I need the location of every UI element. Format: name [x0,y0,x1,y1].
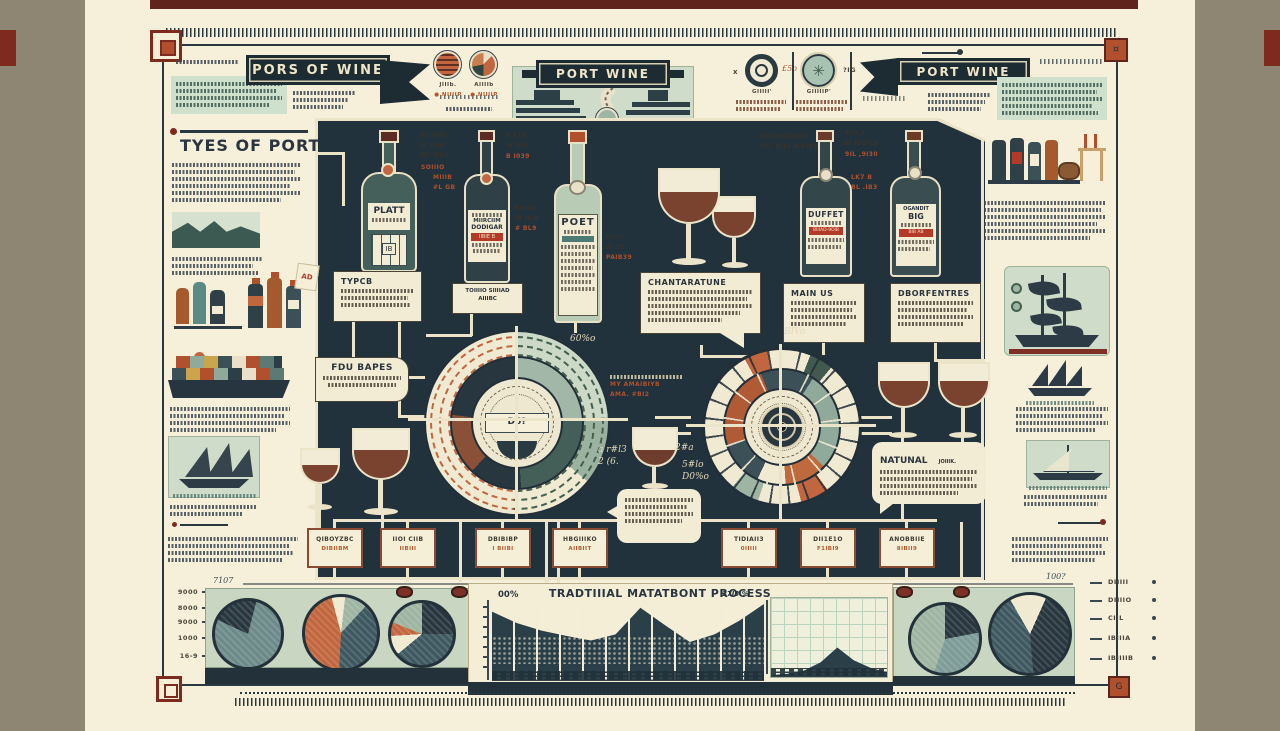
legend-tick [1090,618,1102,620]
bottle-band: BIB AB [899,229,933,237]
stat-pie-icon [470,51,497,78]
label-box-2: IIOI CIIBIIBIII [380,528,436,568]
garbled-text-block [293,88,355,112]
garbled-text-block [168,534,298,565]
legend-tick [1090,582,1102,584]
terrace-bar [632,102,690,107]
cargo-ship-illustration [168,348,290,400]
wine-glass-stem [961,408,965,434]
building-icon [648,90,668,101]
compass-icon [745,54,778,87]
axis-tick [483,646,489,648]
script-axis-label: 7107 [213,576,233,586]
annotation: BVIIA W NLB [515,204,539,224]
script-note: 5#lo D0%o [682,460,709,483]
garbled-text-block [796,97,848,114]
wine-glass-foot [949,432,977,438]
natural-title: NATUNAL [880,456,927,466]
connector [747,568,750,580]
axis-label: 8000 [168,604,198,612]
wine-bottle-3: POET [552,130,604,325]
bullet-dot-icon [172,522,177,527]
divider [180,130,308,133]
corner-ornament-bl [156,676,182,702]
legend-tick [1090,638,1102,640]
garbled-text-block [170,502,256,519]
wine-glass-icon [712,196,756,238]
legend-dot-icon [1152,598,1156,602]
connector [901,504,904,521]
wine-glass-foot [308,504,332,510]
wine-glass-icon [352,428,410,480]
shelf-bottle-icon [248,284,263,328]
wine-glass-icon [632,427,678,467]
connector-knob-icon [451,586,468,598]
wave-band [492,671,764,681]
pct-right: 27I3 % [722,590,749,598]
bottle-band: IIBIE B [471,233,503,241]
bullet-dot-icon [1100,519,1106,525]
connector [333,568,336,580]
divider [850,52,852,110]
compass-mark: £5o [782,64,797,74]
connector [960,522,963,582]
stat-circle-bullet: ● NIIIIP [464,92,504,98]
pie-chart-5 [988,592,1072,676]
legend-label: DIIIII [1108,578,1148,586]
legend-dot-icon [1152,580,1156,584]
properties-box: DBORFENTRES [890,283,981,343]
wine-bottle-2: MIIRCIIM DODIGAR IIBIE B [462,130,512,285]
connector [342,152,345,206]
annotation: MIIIB #L GB [433,173,455,193]
garbled-text-block [1012,534,1108,565]
connector [545,522,548,584]
legend-label: DIIIIO [1108,596,1148,604]
blend-wheel-chart [702,347,862,507]
wine-glass-stem [378,480,383,510]
terrace-bar [516,108,580,113]
axis-tick [483,606,489,608]
connector [318,509,321,528]
connector [409,376,425,379]
bottle-label: DODIGAR [470,224,504,231]
axis-tick [483,656,489,658]
wine-glass-foot [722,262,748,268]
dotted-divider [240,692,1075,694]
garbled-text-block [172,254,262,278]
shelf-bottle-icon [286,286,301,328]
building-icon [534,88,560,103]
tawny-line1: TOIIIIO SIIIIAD [455,288,520,294]
banner-left-label: PORS OF WINE [252,63,384,78]
connector [501,568,504,580]
legend-label: IBIIIA [1108,634,1148,642]
connector [655,416,691,419]
connector [860,432,892,435]
axis-tick [483,636,489,638]
legend-tick [1090,658,1102,660]
connector-knob-icon [896,586,913,598]
compass-caption: GIIIII' [744,89,780,95]
axis-line [766,600,768,674]
annotation: PAIB39 [606,253,632,263]
garbled-text-block [170,404,290,435]
annotation: B I039 [506,152,530,162]
wine-glass-foot [364,508,398,515]
crosshair [779,344,782,512]
pointer-dot-icon [957,49,963,55]
garbled-text-block [984,198,1106,243]
wine-glass-foot [642,483,668,489]
left-edge-tab [0,30,16,66]
garbled-text-block [928,90,990,114]
price-tag: AD [294,263,319,292]
connector-knob-icon [953,586,970,598]
left-column-heading: TYES OF PORT [180,136,330,155]
panel-base-bar [893,676,1075,685]
frame-bottom-hatch [235,698,1065,706]
pie-chart-1 [212,598,284,670]
garbled-text-block [446,104,492,114]
wine-glass-icon [878,362,930,408]
axis-label: 9000 [168,618,198,626]
script-axis-label: 100? [1046,572,1066,582]
label-box-1: QIBOYZBCDIBIIBM [307,528,363,568]
tawny-box: TOIIIIO SIIIIAD AIIIBC [452,283,523,314]
banner-left: PORS OF WINE [246,55,390,85]
types-box: TYPCB [333,271,422,322]
shelf-bottle-icon [210,290,225,324]
bottle-label: DUFFET [808,210,844,219]
note-bubble [617,489,701,543]
wine-glass-icon [658,168,720,224]
wave-band [771,668,887,677]
wine-glass-icon [300,448,340,484]
legend-dot-icon [1152,656,1156,660]
axis-tick [483,626,489,628]
garbled-text-block [1016,404,1108,435]
stat-circle-label: AIIIIb [466,82,502,88]
tall-ship-illustration [1004,266,1110,356]
wine-glass-foot [889,432,917,438]
label-box-5: TIDIAII30IIIII [721,528,777,568]
dotted-divider [863,96,907,101]
garbled-text-block [997,77,1107,120]
axis-label: 16-9 [168,652,198,660]
connector [459,522,462,582]
connector-knob-icon [396,586,413,598]
pie-chart-4 [908,602,982,676]
label-box-7: ANOBBIIE8IBII9 [879,528,935,568]
compass-mark: x [733,68,738,76]
halftone-band [492,636,764,664]
pointer-line [922,52,958,54]
garbled-text-block [172,160,300,205]
stat-circle-icon [434,51,461,78]
bottle-label: POET [561,217,595,228]
pct-left: 00% [498,590,518,600]
annotation: 9IL ,9I30 [845,150,878,160]
panel-edge [315,577,983,580]
axis-tick [483,666,489,668]
annotation: LK7 B BL .IB3 [851,173,878,193]
label-box-3: DBIBIBPI BIIBI [475,528,531,568]
stat-circle-label: JIIIb. [430,82,466,88]
script-note: BIVo [784,327,805,339]
annotation: BIIA ELVAIBII MIL BIIA AIBIBP [760,132,819,152]
script-note: 60%o [570,334,595,346]
wine-glass-stem [686,224,691,260]
pie-chart-2 [302,594,380,672]
script-note: 2#a [675,443,694,455]
top-edge-strip [150,0,1138,9]
label-box-4: HBGIIIKOAIIBIIT [552,528,608,568]
right-edge-tab [1264,30,1280,66]
shelf-bottle-icon [267,278,282,328]
dotted-divider [1040,59,1102,64]
natural-side: JOIIIK. [939,459,956,465]
terrace-bar [626,110,690,115]
divider [1058,522,1102,524]
garbled-text-block [1024,492,1108,509]
types-box-title: TYPCB [341,277,414,286]
annotation: # BL9 [515,224,537,234]
stat-circle-bullet: ● NIIIIP [428,92,468,98]
divider [792,52,794,110]
wine-glass-foot [672,258,706,265]
natural-box: NATUNAL JOIIIK. [872,442,986,504]
wine-glass-icon [938,362,990,408]
shelf-bottle-icon [193,282,206,324]
divider [180,524,228,526]
garbled-text-block [736,97,786,114]
characteristics-box: CHANTARATUNE [640,272,761,334]
annotation: MY AMAIBIYB AMA. #BI2 [610,380,660,400]
crosshair [408,418,628,421]
banner-rod [668,70,684,78]
annotation: KIIYAO K 5LM MI IP23 [421,131,449,162]
connector [826,568,829,580]
annotation: POIIT MI3Y [606,233,626,253]
annotation: K PLA W 9IB [506,131,528,151]
compass-caption: GIIIIIP' [800,89,838,95]
connector [352,322,355,358]
axis-label: 1000 [168,634,198,642]
panel-edge [315,118,940,121]
bottle-band: BIIIAD-9OIB [809,227,843,235]
ship-illustration-2 [1026,440,1110,488]
main-uses-title: MAIN US [791,289,857,298]
legend-dot-icon [1152,616,1156,620]
banner-center: PORT WINE [536,60,670,88]
axis-tick [483,616,489,618]
legend-label: IBIIIIB [1108,654,1148,662]
connector [860,416,892,419]
axis-label: 9000 [168,588,198,596]
script-note: a r#l3 2 (6. [598,445,627,468]
wine-glass-stem [732,238,736,264]
axis-line [487,600,489,680]
panel-base-bar [205,668,507,684]
sailship-illustration [168,436,260,498]
legend-dot-icon [1152,636,1156,640]
annotation: BIII.A W HIBIIA [845,129,878,149]
wine-bottle-5: OGANDIT BIG BIB AB [888,130,943,279]
tawny-line2: AIIIBC [455,296,520,302]
crosshair [515,326,518,522]
connector [406,568,409,582]
frame-top-hatch [166,28,1116,37]
annotation: SOIIIO [421,163,445,173]
wine-glass-stem [318,484,322,506]
connector [578,568,581,580]
connector [381,515,384,529]
legend-label: CIIL [1108,614,1148,622]
label-box-6: DII1E1OF1IBI9 [800,528,856,568]
wine-bottle-1: PLATT IB [360,130,418,274]
wine-glass-stem [901,408,905,434]
shelf-line [174,326,242,329]
bottle-label: BIG [898,212,934,221]
infographic-poster: ¤ G PORS OF WINE JIIIb. ● NIIIIP AIIIIb … [0,0,1280,731]
star-circle-icon: ✳ [802,54,835,87]
corner-ornament-br: G [1108,676,1130,698]
four-grapes-box: FDU BAPES [315,357,409,402]
banner-center-label: PORT WINE [556,67,650,81]
pie-chart-3 [388,600,456,668]
connector [905,568,908,582]
four-grapes-title: FDU BAPES [323,363,401,373]
corner-ornament-tr: ¤ [1104,38,1128,62]
shelf-bottle-icon [176,288,189,324]
mini-area-chart [172,212,260,248]
properties-title: DBORFENTRES [898,289,973,298]
ship-silhouette-icon [1026,362,1096,400]
cellar-shelf-illustration [988,134,1108,194]
garbled-text-block [176,57,238,67]
bullet-dot-icon [170,128,177,135]
bottle-label: PLATT [368,206,410,216]
legend-tick [1090,600,1102,602]
characteristics-title: CHANTARATUNE [648,278,753,287]
bottle-code: IB [382,243,397,255]
